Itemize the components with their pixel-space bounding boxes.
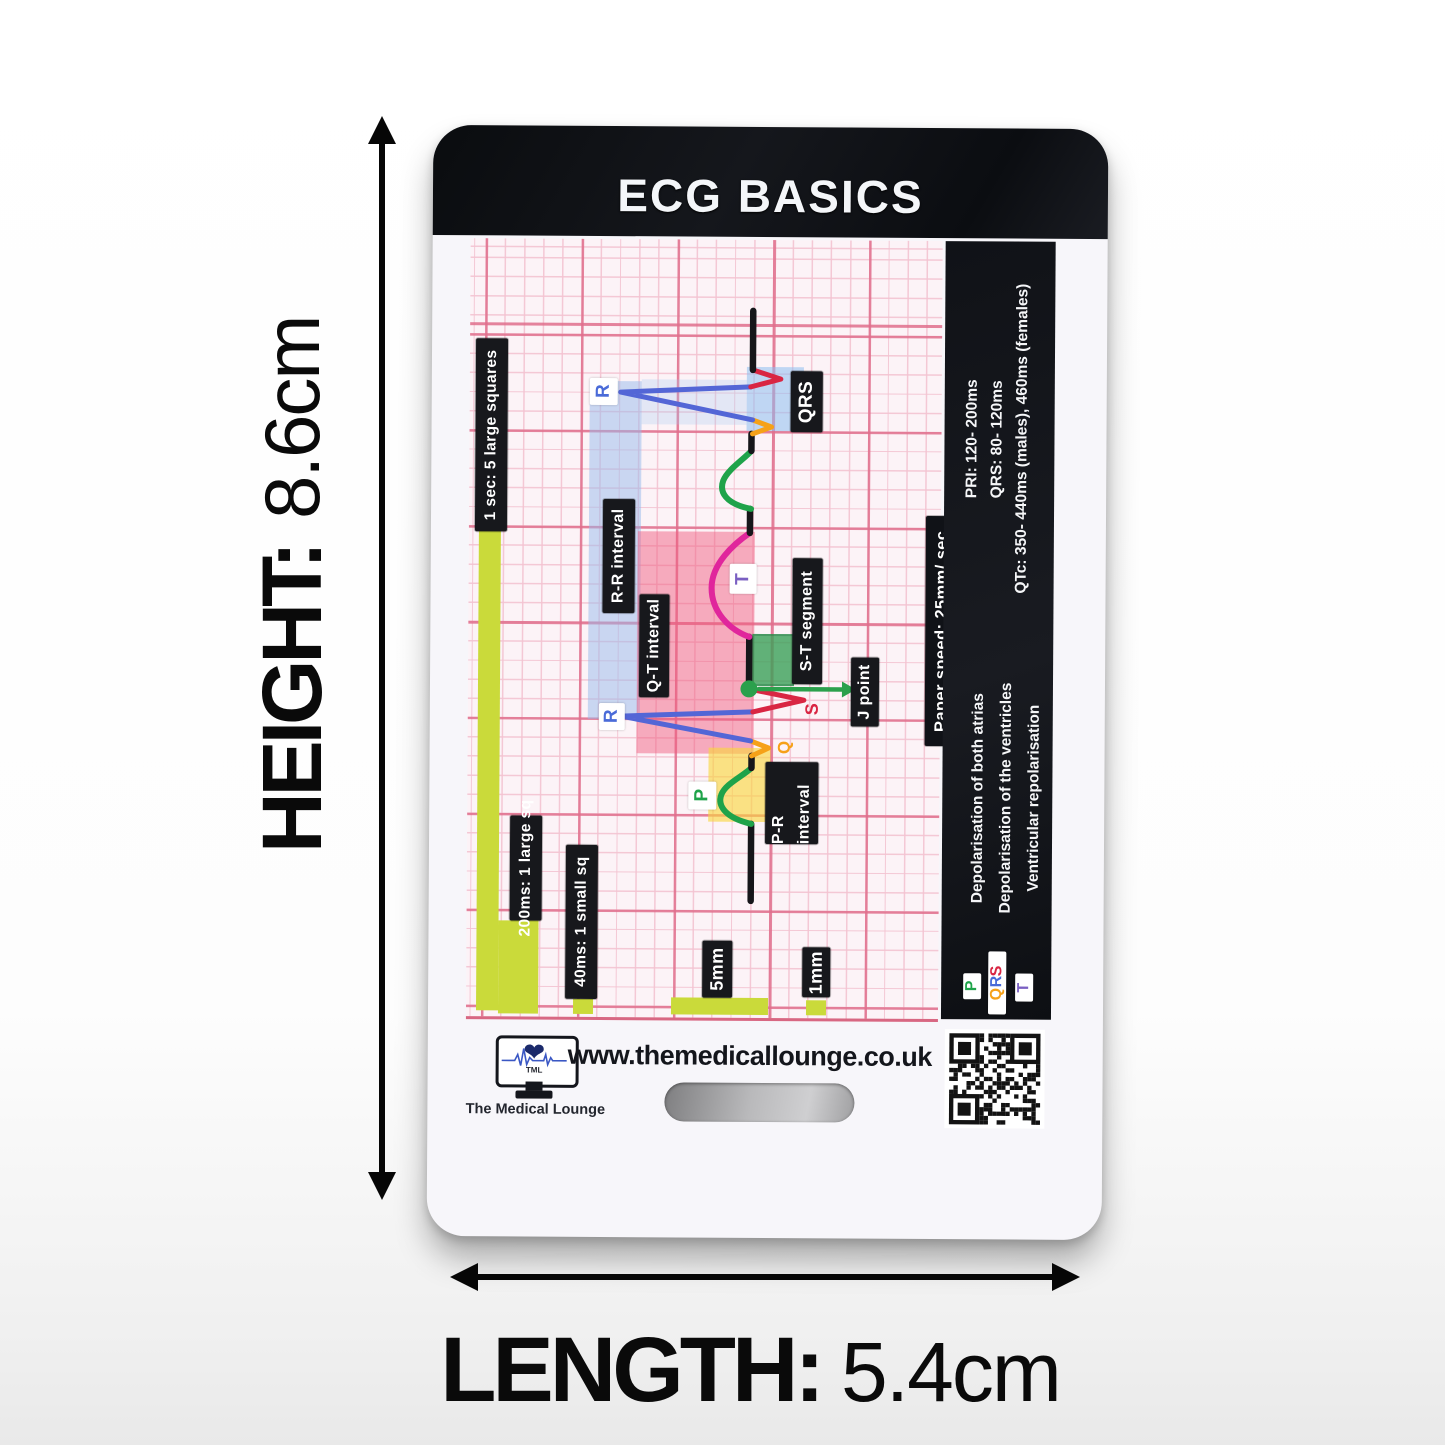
t-wave-chip: T [730, 564, 757, 594]
legend-p-chip: P [963, 973, 981, 999]
length-arrow-line [474, 1274, 1056, 1280]
legend-qrs-chip: QRS [988, 951, 1006, 1014]
brand-logo-monitor: TML [496, 1035, 579, 1088]
five-mm-label: 5mm [702, 941, 732, 998]
length-annotation: LENGTH: 5.4cm [300, 1318, 1200, 1423]
qt-interval-label: Q-T interval [639, 594, 670, 697]
logo-monitor-base [515, 1090, 552, 1098]
legend-q-letter: Q [988, 988, 1006, 1001]
logo-monitor-text: TML [526, 1066, 543, 1075]
pri-reference-value: PRI: 120- 200ms [958, 261, 986, 616]
pr-interval-label: P-R interval [765, 762, 818, 844]
one-mm-label: 1mm [802, 947, 830, 997]
p-wave-meaning: Depolarisation of both atrias [963, 658, 993, 938]
legend-r-letter: R [988, 976, 1006, 988]
s-wave-letter: S [803, 699, 822, 719]
legend-t-chip: T [1015, 974, 1033, 1002]
r-wave-chip-beat1: R [599, 703, 625, 730]
t-wave-meaning: Ventricular repolarisation [1019, 659, 1049, 939]
legend-s-letter: S [988, 966, 1006, 977]
height-arrow-top-head [368, 116, 396, 144]
qrs-wave-meaning: Depolarisation of the ventricles [991, 658, 1021, 938]
qtc-reference-value: QTc: 350- 440ms (males), 460ms (females) [1006, 248, 1038, 628]
r-wave-chip-beat2: R [590, 378, 618, 405]
small-square-time-label: 40ms: 1 small sq [565, 845, 598, 999]
ecg-reference-card: ECG BASICS R R T P [427, 125, 1109, 1240]
large-square-time-label: 200ms: 1 large sq [510, 815, 543, 920]
logo-monitor-stand [526, 1082, 543, 1091]
height-arrow-bottom-head [368, 1172, 396, 1200]
one-second-label: 1 sec: 5 large squares [475, 338, 508, 531]
q-wave-letter: Q [777, 738, 793, 756]
height-arrow-line [379, 140, 385, 1176]
height-annotation: HEIGHT: 8.6cm [235, 340, 350, 830]
qr-code [944, 1029, 1045, 1129]
j-point-dot [740, 680, 757, 697]
length-arrow-right-head [1052, 1263, 1080, 1291]
length-arrow-left-head [450, 1263, 478, 1291]
website-url: www.themedicallounge.co.uk [568, 1040, 928, 1073]
height-value: 8.6cm [247, 317, 338, 519]
height-label: HEIGHT: [244, 545, 341, 853]
logo-ecg-trace: TML [499, 1038, 570, 1078]
length-label: LENGTH: [440, 1318, 821, 1423]
brand-name: The Medical Lounge [465, 1101, 605, 1118]
st-segment-label: S-T segment [792, 558, 823, 684]
j-point-label: J point [851, 658, 879, 727]
p-wave-chip: P [688, 782, 716, 810]
rr-interval-label: R-R interval [602, 499, 635, 613]
j-point-arrow [759, 689, 842, 690]
logo-heart-icon [525, 1045, 544, 1059]
badge-slot-hole [664, 1082, 854, 1122]
length-value: 5.4cm [841, 1324, 1060, 1421]
qrs-label: QRS [791, 371, 823, 432]
